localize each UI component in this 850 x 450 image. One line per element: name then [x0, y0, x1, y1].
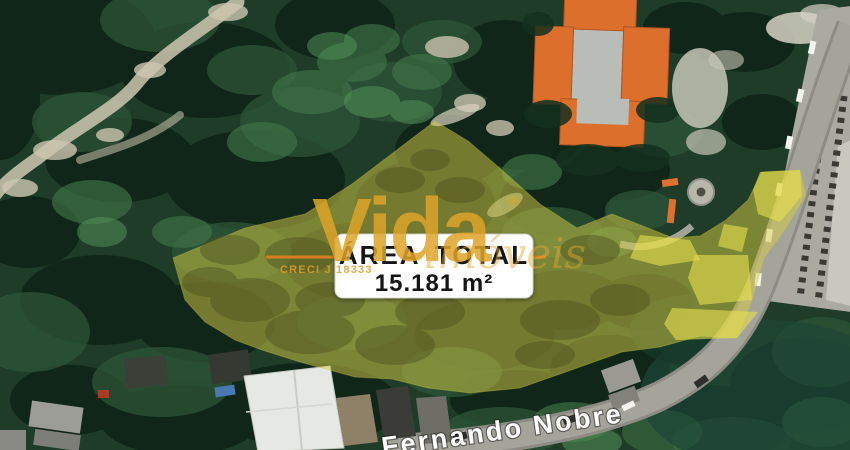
creci-text: CRECI J 18333 [280, 264, 373, 276]
registered-mark-icon: ® [508, 193, 519, 210]
watermark-tagline: imóveis [424, 229, 586, 278]
satellite-map: Fernando Nobre ÁREA TOTAL 15.181 m² Vida… [0, 0, 850, 450]
aerial-photo: Fernando Nobre ÁREA TOTAL 15.181 m² Vida… [0, 0, 850, 450]
courtyard-south [576, 97, 629, 125]
